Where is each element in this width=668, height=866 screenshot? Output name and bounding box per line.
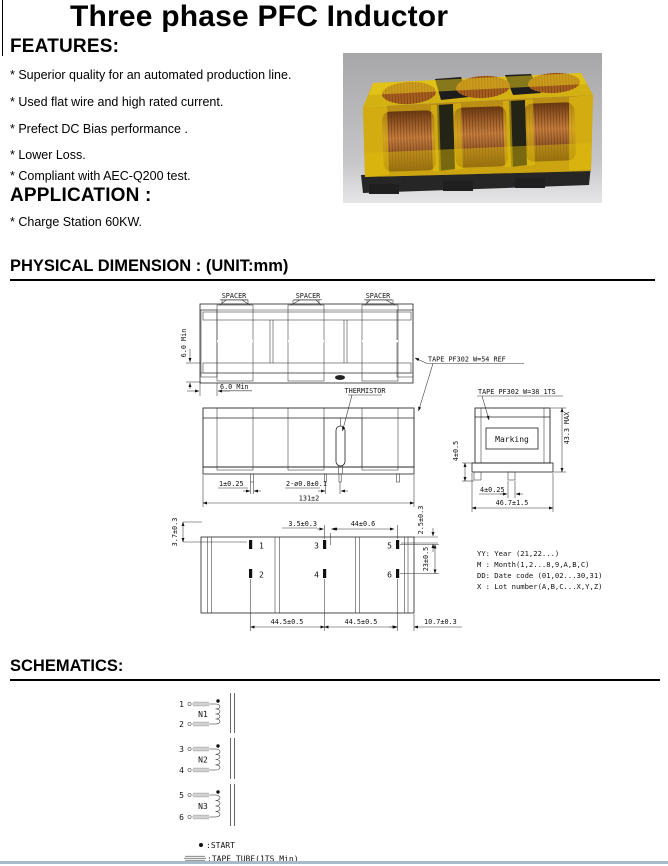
dim-height-max: 43.3 MAX [551, 408, 571, 472]
pin-number: 5 [387, 542, 392, 551]
side-view: TAPE PF302 W=38 1TS Marking 4±0.5 [452, 388, 571, 512]
marking-code-block: YY: Year (21,22...) M : Month(1,2...8,9,… [477, 549, 603, 591]
tape54-label: TAPE PF302 W=54 REF [415, 356, 524, 412]
bottom-view-pins [249, 540, 399, 578]
feature-item: * Prefect DC Bias performance . [10, 122, 188, 136]
dim-label: 4±0.5 [452, 441, 460, 461]
coil-blocks-top-view [217, 305, 398, 381]
dim-label: 3.5±0.3 [288, 520, 317, 528]
winding-name: N3 [198, 802, 208, 811]
schematic-drawing: 1 N1 2 3 N2 [0, 690, 668, 866]
schematic-pin-number: 1 [179, 700, 184, 709]
dim-pin-length: 4±0.5 [452, 441, 474, 481]
pin-number: 2 [259, 571, 264, 580]
dim-side-pin-width: 4±0.25 [479, 481, 523, 498]
dim-label: 4±0.25 [480, 486, 505, 494]
tape-label: TAPE PF302 W=38 1TS [478, 388, 556, 396]
dim-bottom-row: 44.5±0.5 44.5±0.5 10.7±0.3 [251, 579, 463, 631]
feature-item: * Lower Loss. [10, 148, 86, 162]
start-dot [216, 744, 219, 747]
bottom-view: 1 3 5 2 4 6 3.5±0.3 44±0.6 [201, 520, 462, 631]
dim-label: 44.5±0.5 [271, 618, 304, 626]
dim-right-offset: 2.5±0.3 [401, 506, 438, 552]
winding-name: N1 [198, 710, 208, 719]
page-title: Three phase PFC Inductor [70, 0, 448, 34]
dim-1: 1±0.25 [218, 480, 261, 494]
dim-label: 2.5±0.3 [417, 506, 425, 535]
marking-code-line: YY: Year (21,22...) [477, 549, 559, 558]
start-dot-legend [199, 843, 203, 847]
feature-item: * Superior quality for an automated prod… [10, 68, 291, 82]
tape-label: TAPE PF302 W=54 REF [428, 356, 506, 364]
dim-label: 44±0.6 [351, 520, 376, 528]
pin-number: 1 [259, 542, 264, 551]
marking-box-label: Marking [495, 435, 529, 444]
product-photo [343, 53, 602, 203]
dim-label: 44.5±0.5 [345, 618, 378, 626]
start-dot [216, 699, 219, 702]
application-item: * Charge Station 60KW. [10, 215, 142, 229]
inductor-body [361, 72, 593, 194]
dim-label: 6.0 Min [220, 383, 249, 391]
datasheet-page: Three phase PFC Inductor FEATURES: * Sup… [0, 0, 668, 866]
dim-holes: 2-ø0.8±0.1 [285, 480, 348, 494]
marking-code-line: DD: Date code (01,02...30,31) [477, 571, 603, 580]
marking-code-line: X : Lot number(A,B,C...X,Y,Z) [477, 582, 603, 591]
spacer-labels: SPACER SPACER SPACER [220, 292, 395, 305]
product-photo-art [343, 53, 602, 203]
spacer-label: SPACER [222, 292, 247, 300]
features-heading: FEATURES: [10, 36, 119, 58]
dim-pin-span: 44±0.6 [333, 520, 398, 539]
dim-label: 6.0 Min [180, 329, 188, 358]
start-dot [216, 790, 219, 793]
dimension-drawing: SPACER SPACER SPACER 6.0 Min [0, 285, 668, 655]
dim-label: 2-ø0.8±0.1 [286, 480, 327, 488]
spacer-label: SPACER [366, 292, 391, 300]
thermistor-text: THERMISTOR [345, 387, 387, 395]
schematic-pin-number: 3 [179, 745, 184, 754]
winding-n2: 3 N2 4 [179, 738, 234, 779]
pin-number: 3 [314, 542, 319, 551]
marking-code-line: M : Month(1,2...8,9,A,B,C) [477, 560, 590, 569]
feature-item: * Compliant with AEC-Q200 test. [10, 169, 191, 183]
dim-label: 3.7±0.3 [171, 518, 179, 547]
pin-number: 4 [314, 571, 319, 580]
pin-number: 6 [387, 571, 392, 580]
dim-6min-vertical: 6.0 Min [180, 329, 201, 389]
dim-label: 46.7±1.5 [496, 499, 529, 507]
schematic-pin-number: 2 [179, 720, 184, 729]
application-heading: APPLICATION : [10, 185, 152, 207]
dim-label: 23±0.5 [422, 547, 430, 572]
thermistor-label: THERMISTOR [343, 387, 387, 431]
spacer-label: SPACER [296, 292, 321, 300]
schematic-pin-number: 6 [179, 813, 184, 822]
dim-label: 43.3 MAX [563, 411, 571, 445]
winding-n3: 5 N3 6 [179, 784, 234, 826]
dim-label: 1±0.25 [219, 480, 244, 488]
schematic-pin-number: 4 [179, 766, 184, 775]
winding-n1: 1 N1 2 [179, 693, 234, 733]
dim-left-offset: 3.7±0.3 [171, 518, 247, 547]
schematics-heading: SCHEMATICS: [10, 657, 660, 681]
dim-label: 10.7±0.3 [424, 618, 457, 626]
coil-blocks-front-view [217, 408, 398, 470]
dim-pin3-offset: 3.5±0.3 [282, 520, 338, 545]
schematic-pin-number: 5 [179, 791, 184, 800]
page-bottom-rule [0, 861, 668, 864]
dim-label: 131±2 [299, 495, 319, 503]
legend-start-text: :START [206, 841, 235, 850]
physical-dimension-heading: PHYSICAL DIMENSION : (UNIT:mm) [10, 257, 655, 281]
feature-item: * Used flat wire and high rated current. [10, 95, 223, 109]
dim-6min-horizontal: 6.0 Min [187, 383, 252, 396]
page-left-border [2, 0, 3, 56]
winding-name: N2 [198, 756, 208, 765]
